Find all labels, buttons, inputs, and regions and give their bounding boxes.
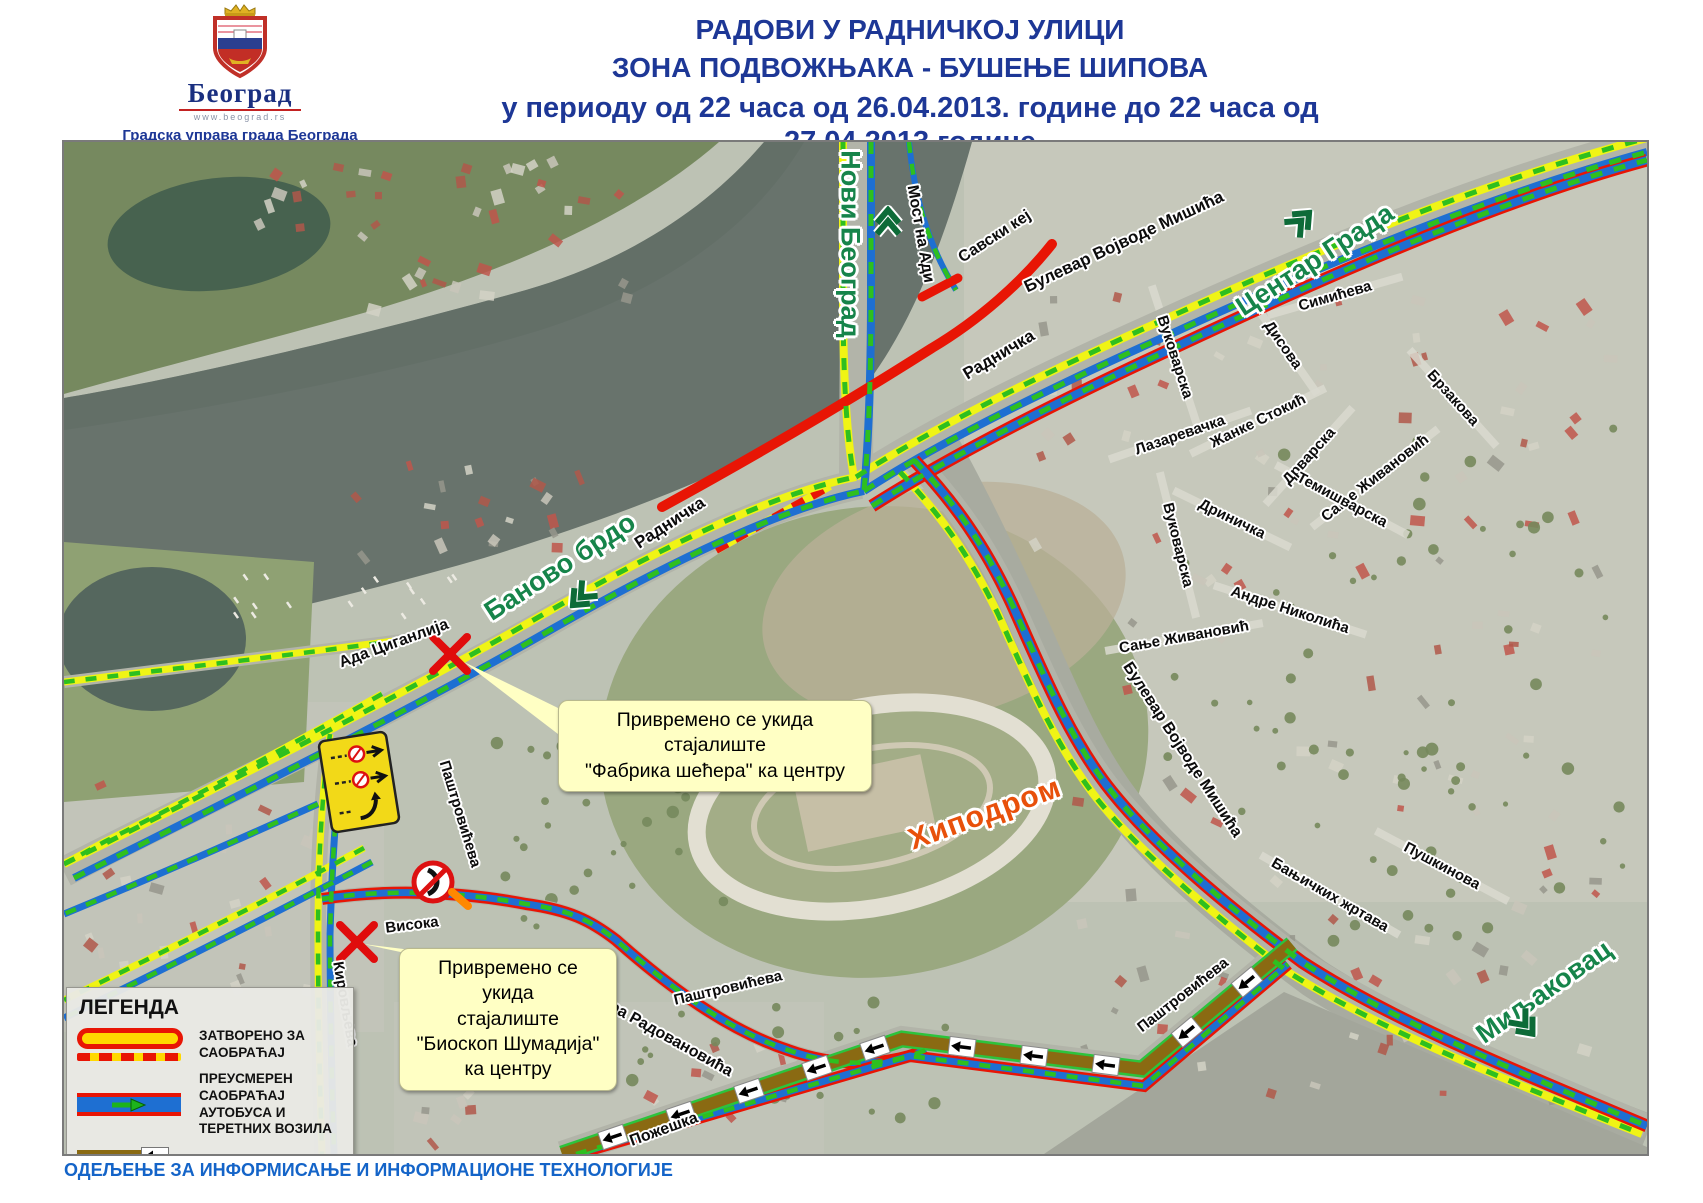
temporary-stop-callout: Привремено се укида стајалиште "Фабрика …: [558, 700, 872, 792]
legend: ЛЕГЕНДА ЗАТВОРЕНО ЗА САОБРАЋАЈ ПРЕУСМЕ: [66, 987, 354, 1156]
street-label: Булевар Војводе Мишића: [1021, 187, 1227, 297]
street-label: Савски кеј: [955, 207, 1034, 267]
legend-item-closed: ЗАТВОРЕНО ЗА САОБРАЋАЈ: [77, 1028, 343, 1062]
closed-road-symbol: [77, 1028, 187, 1061]
street-label: Брзакова: [1424, 367, 1483, 430]
street-label: Вуковарска: [1159, 501, 1196, 589]
traffic-map: Мост на АдиСавски кејБулевар Војводе Миш…: [62, 140, 1649, 1156]
traffic-notice-poster: Београд www.beograd.rs Градска управа гр…: [0, 0, 1703, 1203]
destination-label: Баново брдо: [479, 507, 641, 628]
legend-item-label: ЗАТВОРЕНО ЗА САОБРАЋАЈ: [199, 1028, 343, 1062]
street-label: Бањичких жртава: [1268, 855, 1391, 936]
belgrade-coat-of-arms-icon: [203, 2, 277, 80]
logo-url: www.beograd.rs: [106, 112, 374, 122]
street-label: Паштровићева: [436, 759, 485, 870]
street-label: Радничка: [631, 493, 709, 553]
logo-city-name: Београд: [106, 80, 374, 107]
street-label: Ада Циганлија: [337, 616, 451, 672]
black-arrow-icon: [143, 1149, 167, 1156]
title-line2: ЗОНА ПОДВОЖЊАКА - БУШЕЊЕ ШИПОВА: [380, 52, 1440, 84]
street-label: Вуковарска: [1154, 313, 1197, 400]
poster-title: РАДОВИ У РАДНИЧКОЈ УЛИЦИ ЗОНА ПОДВОЖЊАКА…: [380, 14, 1440, 159]
diverted-traffic-symbol: [77, 1093, 187, 1116]
street-label: Висока: [384, 913, 439, 936]
street-label: Дисова: [1260, 318, 1305, 373]
legend-item-diverted: ПРЕУСМЕРЕН САОБРАЋАЈ АУТОБУСА И ТЕРЕТНИХ…: [77, 1071, 343, 1139]
area-label: Хиподром: [904, 771, 1066, 858]
street-label: Сање Живановић: [1118, 617, 1250, 657]
legend-item-label: ПРЕУСМЕРЕН САОБРАЋАЈ АУТОБУСА И ТЕРЕТНИХ…: [199, 1071, 343, 1139]
street-label: Мост на Ади: [903, 184, 938, 284]
street-label: Радничка: [960, 326, 1039, 384]
legend-item-allowed: ДОЗВОЉЕН СМЕР: [77, 1147, 343, 1156]
destination-label: Нови Београд: [835, 150, 866, 338]
title-line1: РАДОВИ У РАДНИЧКОЈ УЛИЦИ: [380, 14, 1440, 46]
green-arrow-icon: [109, 1098, 149, 1112]
legend-title: ЛЕГЕНДА: [79, 996, 343, 1020]
street-label: Пушкинова: [1401, 839, 1483, 893]
street-label: Булевар Војводе Мишића: [1119, 659, 1246, 841]
street-label: Симићева: [1296, 277, 1373, 314]
allowed-direction-symbol: [77, 1147, 187, 1156]
temporary-stop-callout: Привремено се укида стајалиште "Биоскоп …: [399, 948, 617, 1091]
street-label: Дриничка: [1196, 496, 1268, 543]
street-label: Паштровићева: [1134, 954, 1232, 1036]
footer-department: ОДЕЉЕЊЕ ЗА ИНФОРМИСАЊЕ И ИНФОРМАЦИОНЕ ТЕ…: [64, 1160, 673, 1181]
street-label: Пожешка: [627, 1109, 700, 1150]
street-label: Паштровићева: [672, 967, 784, 1008]
logo-rule: [179, 109, 301, 111]
